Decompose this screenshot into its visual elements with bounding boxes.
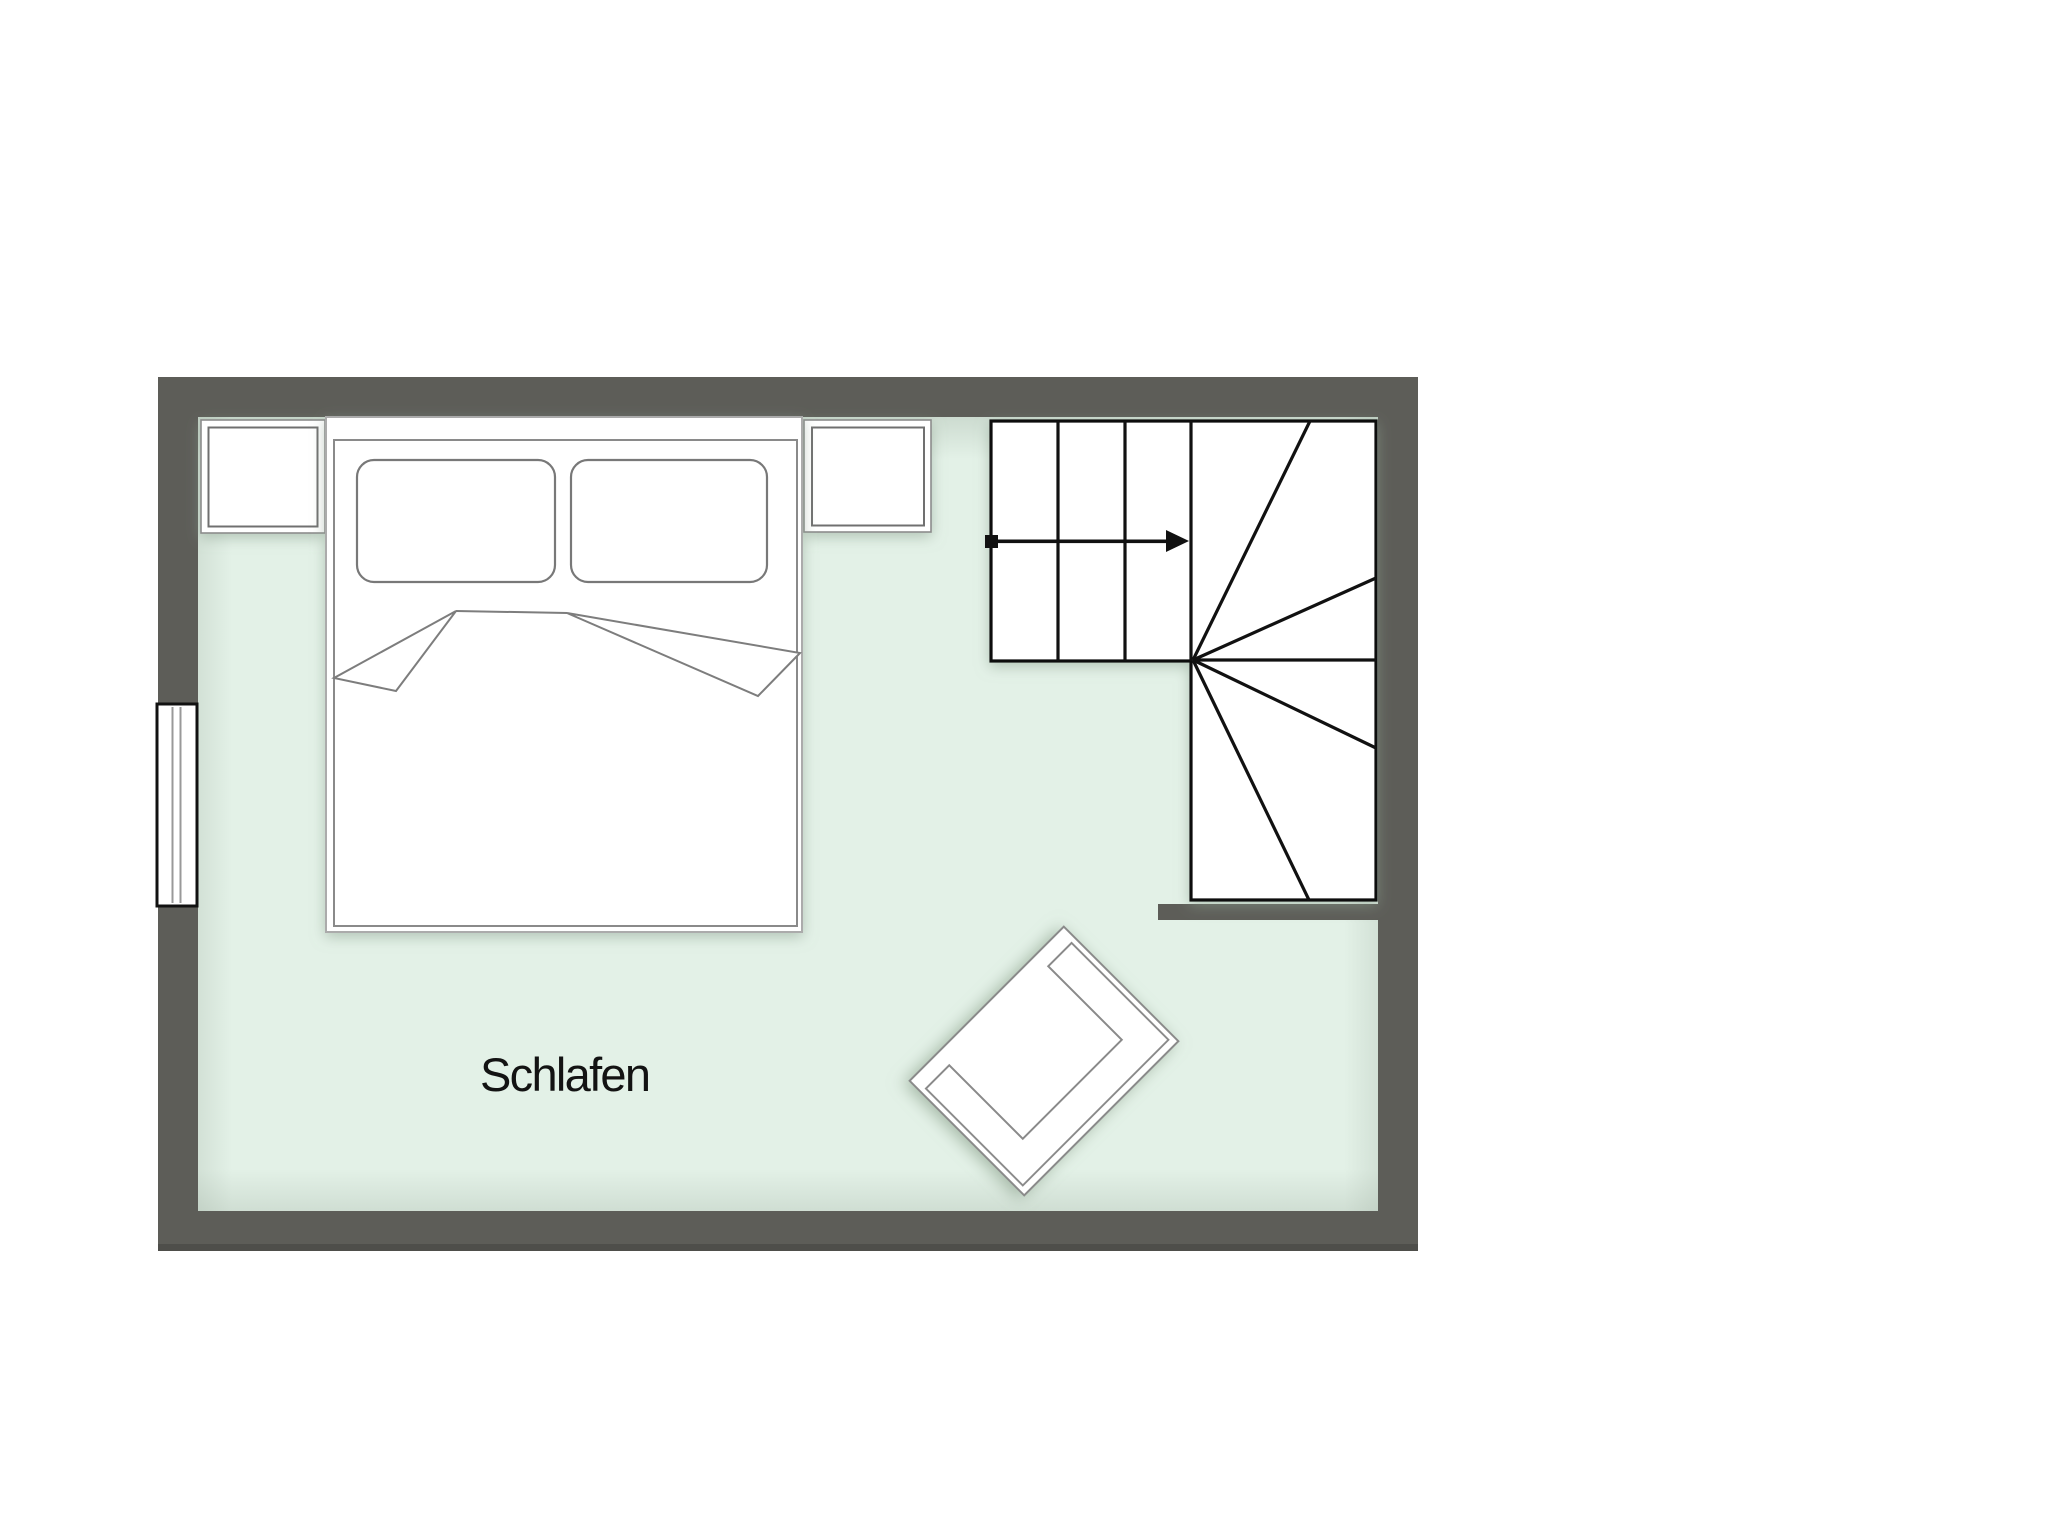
svg-text:Schlafen: Schlafen [480, 1048, 649, 1101]
